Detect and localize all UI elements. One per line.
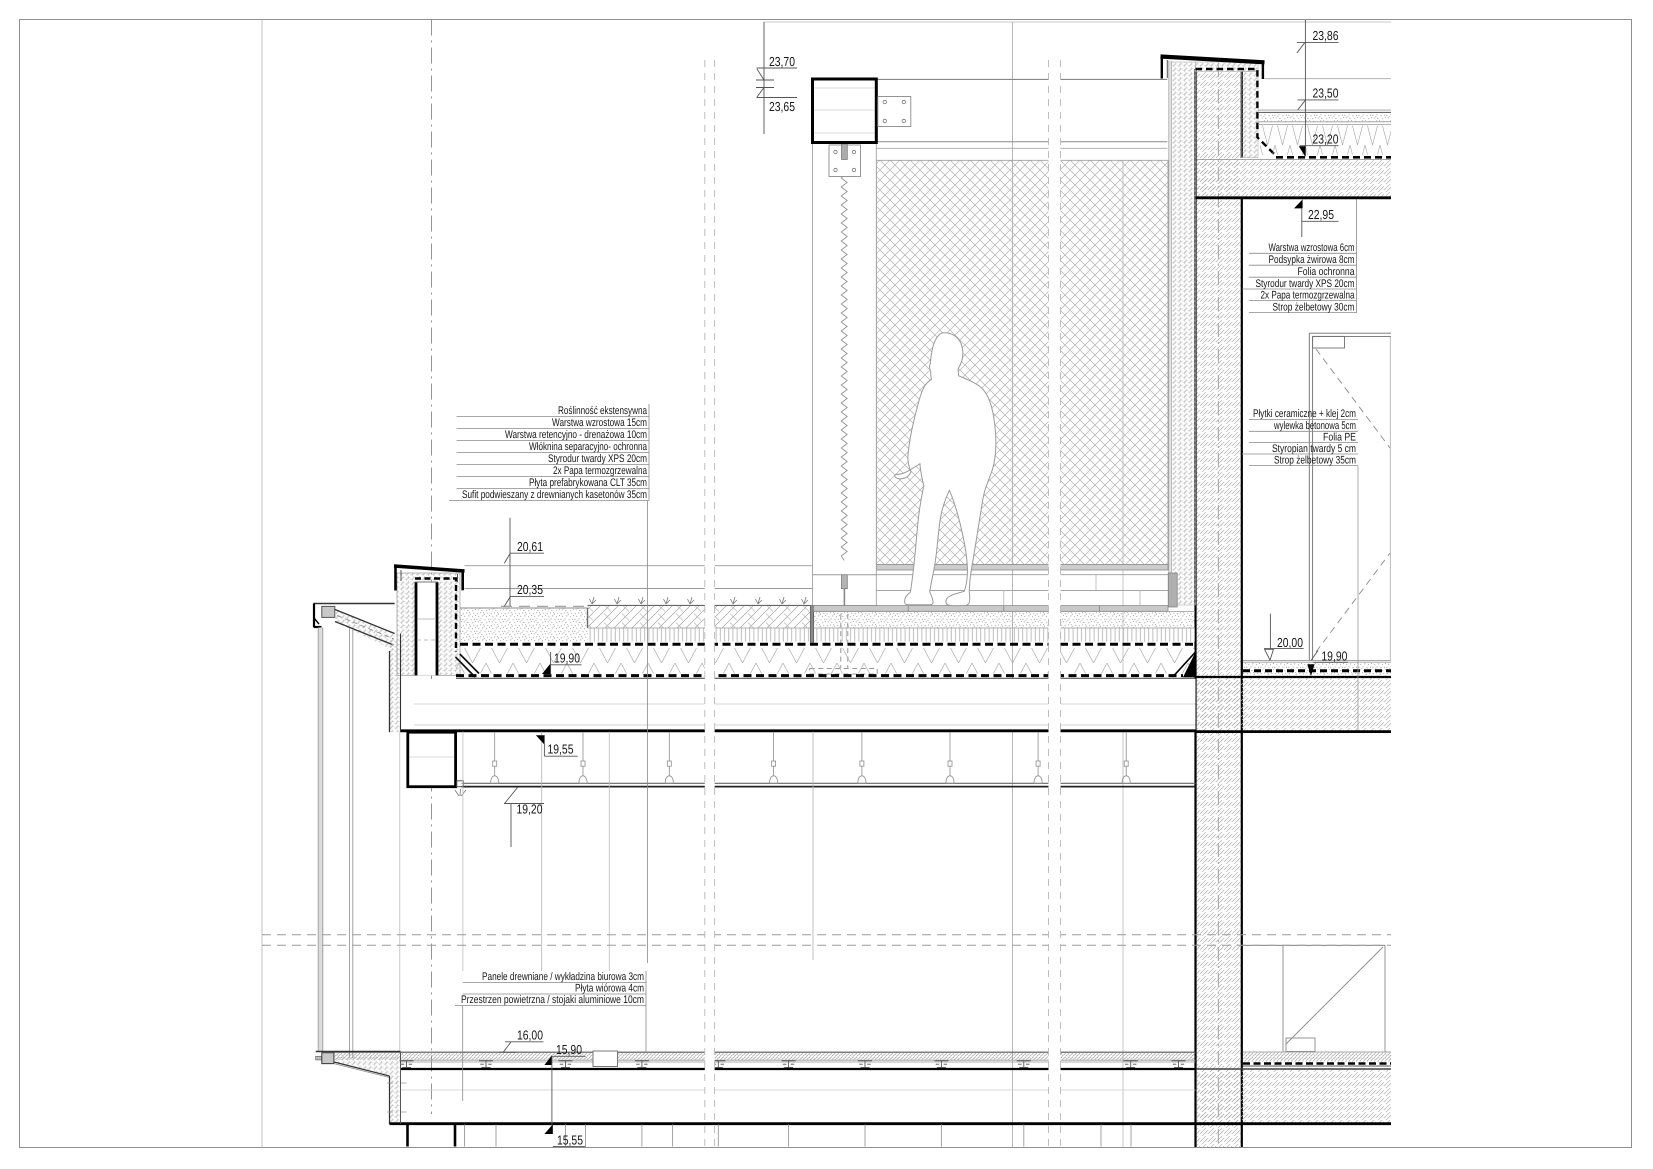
svg-text:Płyta wiórowa 4cm: Płyta wiórowa 4cm [575,983,644,995]
svg-text:Włóknina separacyjno- ochronna: Włóknina separacyjno- ochronna [529,441,648,453]
svg-text:20,35: 20,35 [517,582,543,597]
svg-text:Styrodur twardy XPS 20cm: Styrodur twardy XPS 20cm [548,453,647,465]
svg-text:23,86: 23,86 [1313,28,1339,43]
svg-text:Przestrzen powietrzna / stojak: Przestrzen powietrzna / stojaki aluminio… [461,994,644,1006]
svg-text:Podsypka żwirowa 8cm: Podsypka żwirowa 8cm [1269,254,1355,266]
svg-text:Strop żelbetowy 35cm: Strop żelbetowy 35cm [1274,455,1356,467]
svg-text:20,00: 20,00 [1277,635,1303,650]
svg-text:19,90: 19,90 [554,651,580,666]
svg-text:Płytki ceramiczne + klej 2cm: Płytki ceramiczne + klej 2cm [1253,408,1356,420]
svg-text:wylewka betonowa 5cm: wylewka betonowa 5cm [1273,420,1356,432]
svg-text:Roślinność ekstensywna: Roślinność ekstensywna [558,405,648,417]
svg-text:Warstwa wzrostowa 6cm: Warstwa wzrostowa 6cm [1269,242,1355,254]
svg-text:16,00: 16,00 [517,1028,543,1043]
svg-text:22,95: 22,95 [1308,207,1334,222]
svg-text:Styrodur twardy XPS 20cm: Styrodur twardy XPS 20cm [1256,278,1355,290]
svg-text:19,20: 19,20 [517,802,543,817]
svg-text:23,50: 23,50 [1313,86,1339,101]
svg-text:2x Papa termozgrzewalna: 2x Papa termozgrzewalna [1261,290,1356,302]
svg-text:19,55: 19,55 [548,742,574,757]
svg-text:Strop żelbetowy 30cm: Strop żelbetowy 30cm [1273,302,1355,314]
svg-text:15,90: 15,90 [556,1042,582,1057]
svg-text:Warstwa wzrostowa 15cm: Warstwa wzrostowa 15cm [552,417,647,429]
svg-text:19,90: 19,90 [1321,649,1347,664]
svg-text:Płyta prefabrykowana CLT 35cm: Płyta prefabrykowana CLT 35cm [529,477,647,489]
svg-text:Styropian twardy 5 cm: Styropian twardy 5 cm [1272,443,1356,455]
svg-text:20,61: 20,61 [517,539,543,554]
svg-text:Sufit podwieszany z drewnianyc: Sufit podwieszany z drewnianych kasetonó… [462,489,647,501]
svg-text:15,55: 15,55 [557,1132,583,1147]
svg-text:Folia ochronna: Folia ochronna [1298,266,1356,278]
svg-text:Folia PE: Folia PE [1323,432,1356,444]
svg-text:Panele drewniane / wykładzina: Panele drewniane / wykładzina biurowa 3c… [482,971,644,983]
svg-text:2x Papa termozgrzewalna: 2x Papa termozgrzewalna [553,465,648,477]
svg-text:Warstwa retencyjno - drenażowa: Warstwa retencyjno - drenażowa 10cm [505,429,647,441]
svg-text:23,20: 23,20 [1313,131,1339,146]
svg-text:23,70: 23,70 [769,54,795,69]
svg-text:23,65: 23,65 [769,99,795,114]
